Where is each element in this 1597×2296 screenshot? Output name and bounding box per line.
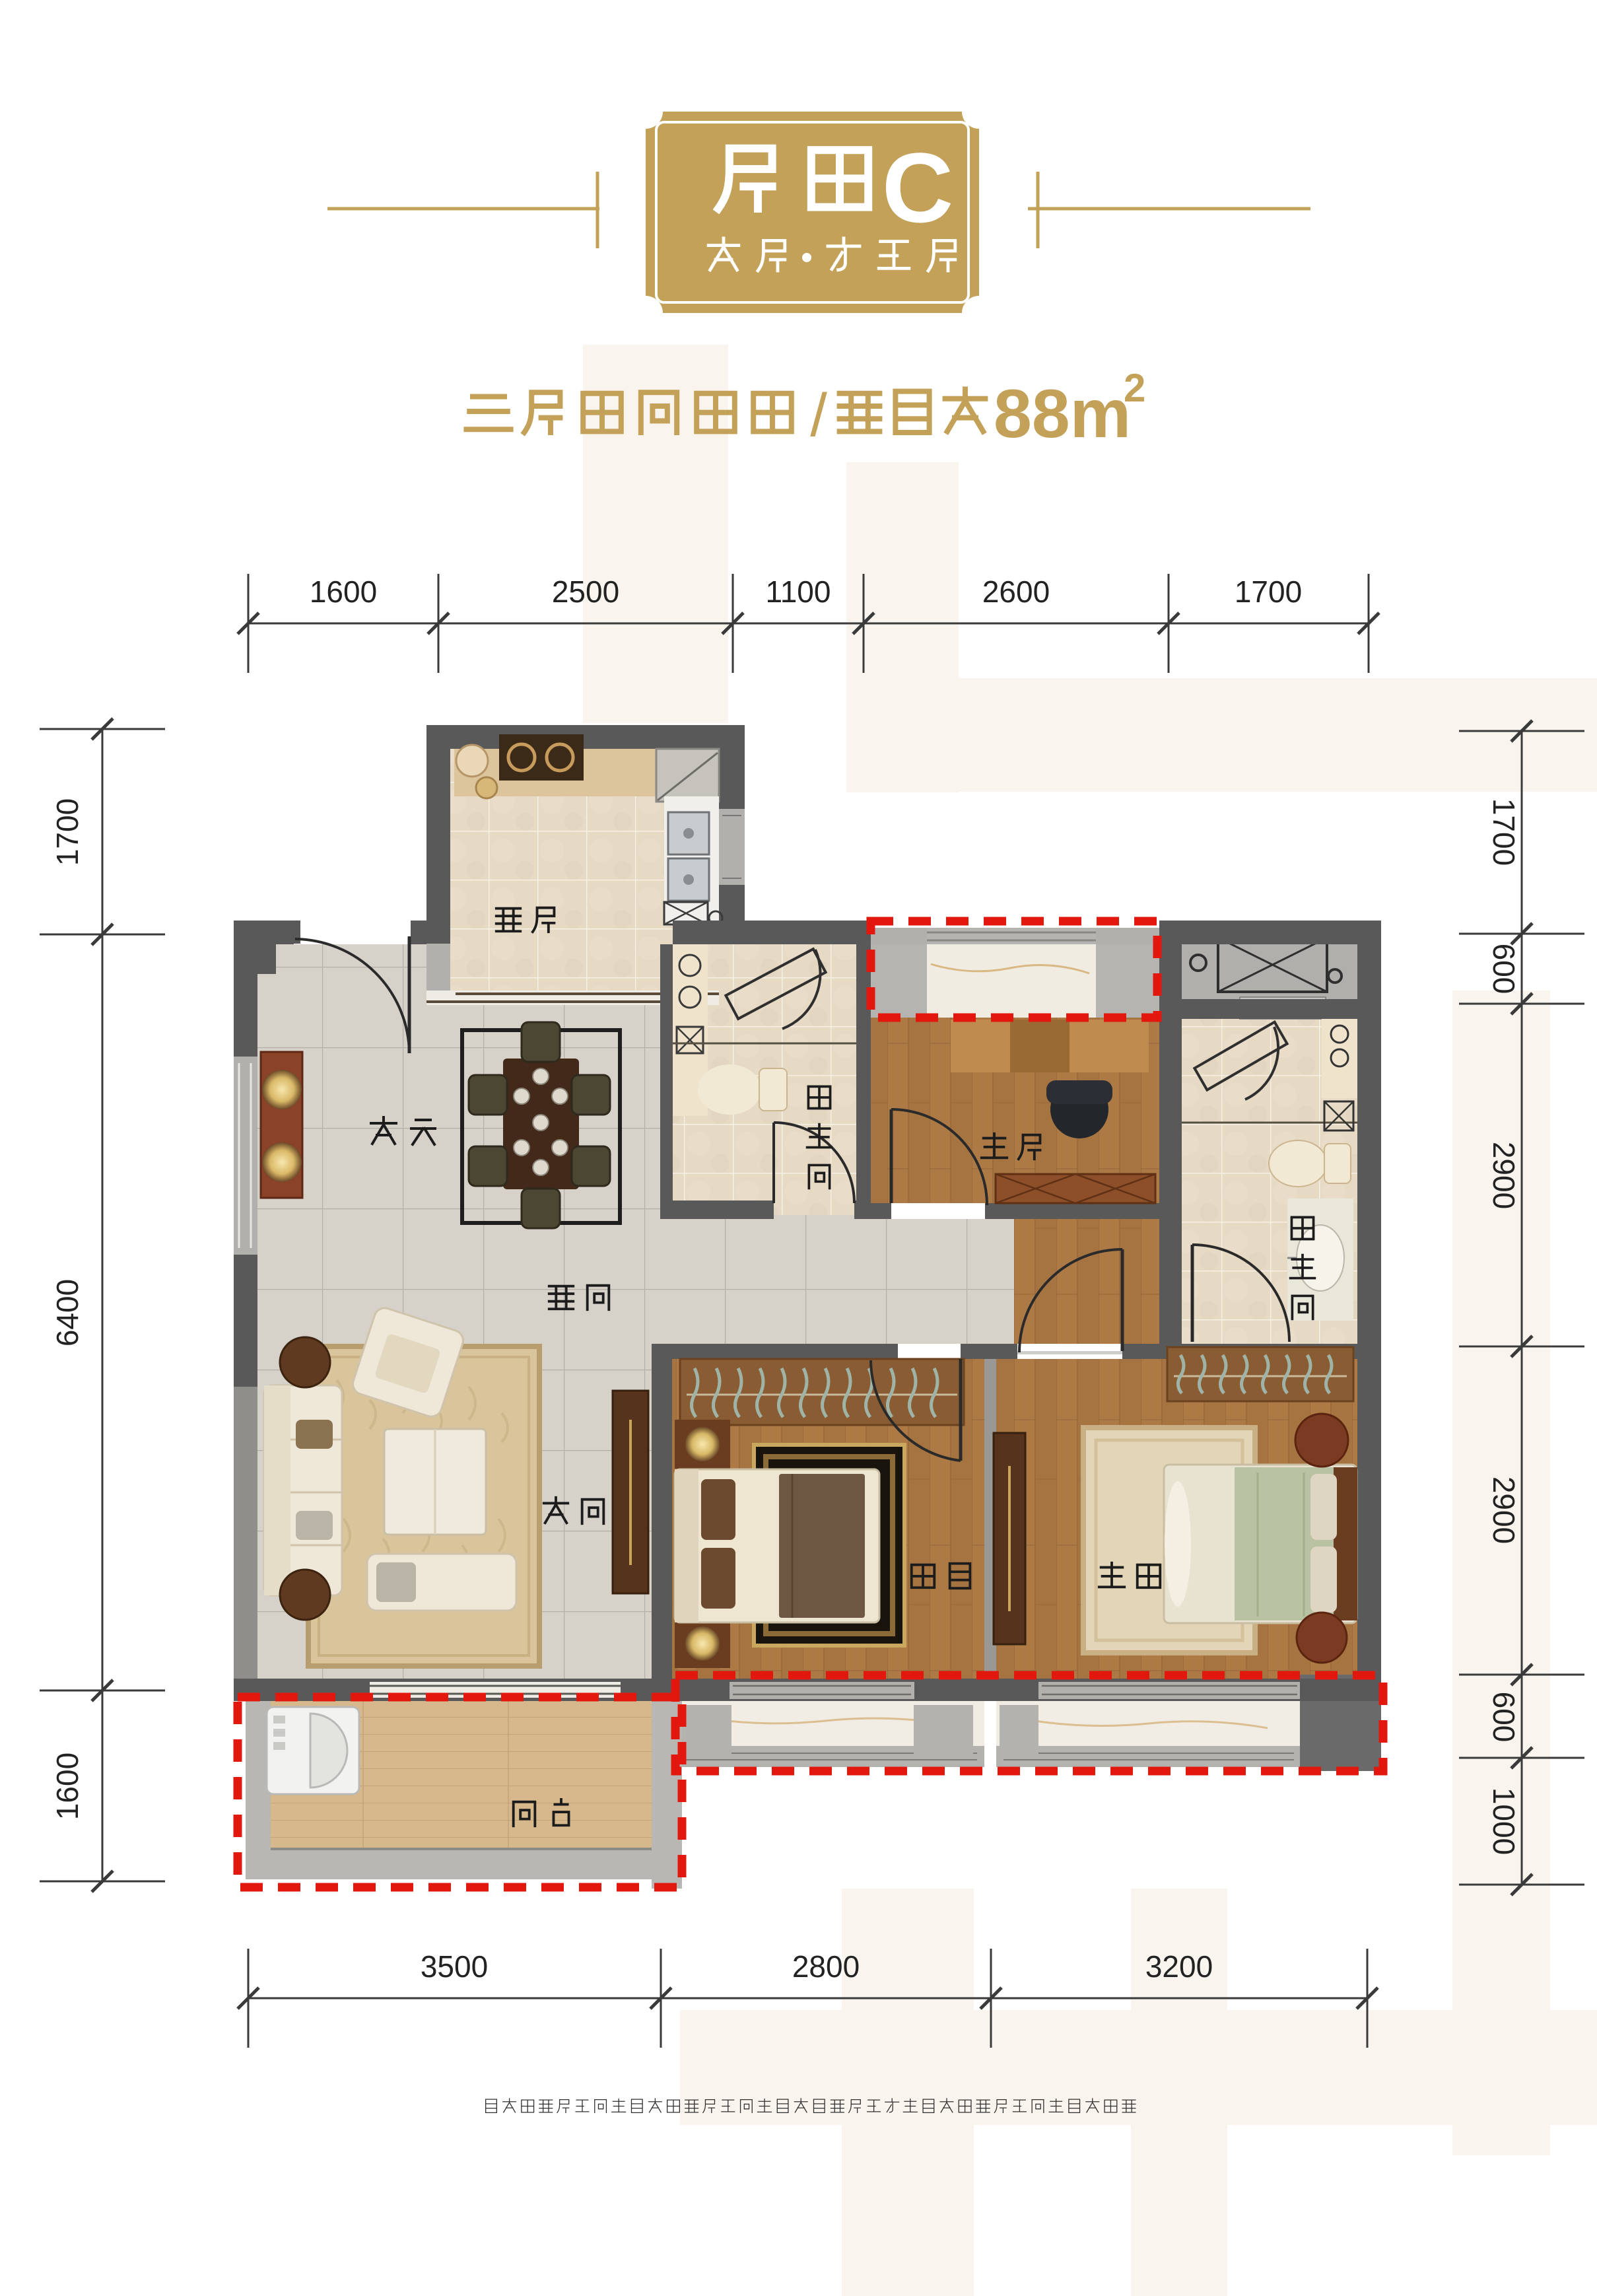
svg-text:2900: 2900 (1487, 1142, 1521, 1209)
svg-text:1100: 1100 (766, 574, 831, 609)
svg-text:88m: 88m (994, 376, 1131, 452)
svg-text:1700: 1700 (1235, 574, 1302, 609)
svg-text:6400: 6400 (50, 1279, 85, 1346)
svg-text:2500: 2500 (552, 574, 619, 609)
svg-text:1000: 1000 (1487, 1788, 1521, 1855)
svg-text:2: 2 (1124, 366, 1145, 410)
svg-text:2900: 2900 (1487, 1477, 1521, 1544)
svg-text:1700: 1700 (50, 798, 85, 866)
svg-text:2600: 2600 (982, 574, 1050, 609)
svg-text:1600: 1600 (50, 1753, 85, 1820)
svg-text:C: C (882, 132, 953, 243)
svg-text:3200: 3200 (1145, 1949, 1213, 1984)
svg-text:2800: 2800 (792, 1949, 860, 1984)
svg-text:600: 600 (1487, 944, 1521, 994)
svg-text:1600: 1600 (310, 574, 377, 609)
svg-text:1700: 1700 (1487, 798, 1521, 866)
svg-text:/: / (810, 382, 827, 449)
svg-text:600: 600 (1487, 1692, 1521, 1743)
svg-text:3500: 3500 (421, 1949, 488, 1984)
